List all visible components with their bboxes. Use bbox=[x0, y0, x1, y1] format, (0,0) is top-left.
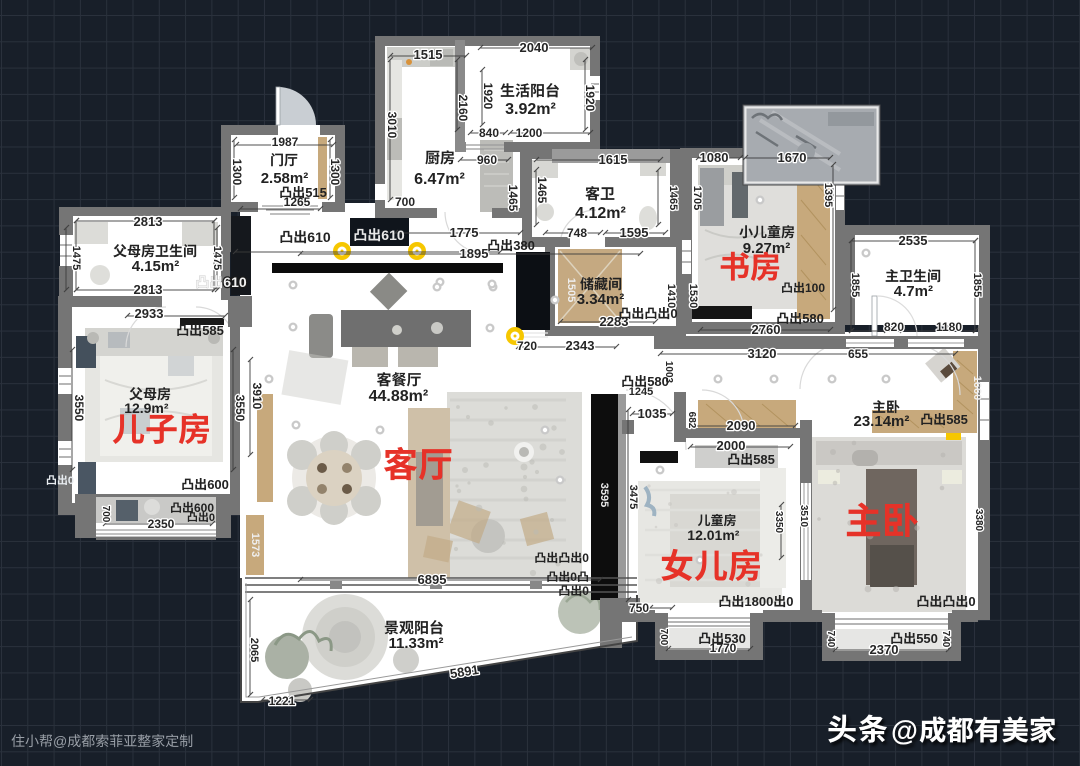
svg-text:6895: 6895 bbox=[418, 572, 447, 587]
svg-text:3010: 3010 bbox=[385, 112, 399, 139]
svg-text:1670: 1670 bbox=[778, 150, 807, 165]
svg-text:2090: 2090 bbox=[727, 418, 756, 433]
svg-text:1300: 1300 bbox=[328, 159, 342, 186]
svg-text:2933: 2933 bbox=[135, 306, 164, 321]
svg-text:12.9m²: 12.9m² bbox=[124, 400, 169, 416]
svg-text:748: 748 bbox=[567, 226, 587, 240]
svg-text:1200: 1200 bbox=[516, 126, 543, 140]
svg-text:1465: 1465 bbox=[535, 177, 549, 204]
svg-text:1465: 1465 bbox=[506, 185, 520, 212]
svg-text:2.58m²: 2.58m² bbox=[261, 170, 309, 187]
svg-text:0: 0 bbox=[68, 475, 74, 487]
svg-text:2813: 2813 bbox=[134, 214, 163, 229]
svg-text:1035: 1035 bbox=[638, 406, 667, 421]
svg-text:2370: 2370 bbox=[870, 642, 899, 657]
svg-text:585: 585 bbox=[202, 323, 224, 338]
svg-text:1660: 1660 bbox=[971, 376, 983, 400]
svg-text:0: 0 bbox=[209, 512, 215, 524]
svg-text:3.92m²: 3.92m² bbox=[505, 101, 556, 118]
svg-text:2813: 2813 bbox=[134, 282, 163, 297]
svg-text:610: 610 bbox=[223, 274, 247, 290]
svg-text:1615: 1615 bbox=[599, 152, 628, 167]
svg-text:3475: 3475 bbox=[627, 485, 639, 509]
svg-text:2000: 2000 bbox=[717, 438, 746, 453]
svg-text:1395: 1395 bbox=[822, 183, 834, 207]
svg-text:@: @ bbox=[53, 733, 67, 749]
svg-text:12.01m²: 12.01m² bbox=[687, 527, 739, 543]
svg-text:580: 580 bbox=[802, 311, 824, 326]
svg-text:1855: 1855 bbox=[849, 273, 861, 297]
svg-text:580: 580 bbox=[647, 374, 669, 389]
svg-text:750: 750 bbox=[629, 601, 649, 615]
svg-text:1775: 1775 bbox=[450, 225, 479, 240]
svg-text:6.47m²: 6.47m² bbox=[414, 171, 465, 188]
svg-text:600: 600 bbox=[207, 477, 229, 492]
svg-text:1465: 1465 bbox=[667, 186, 679, 210]
svg-text:2343: 2343 bbox=[566, 338, 595, 353]
svg-text:4.12m²: 4.12m² bbox=[575, 205, 626, 222]
svg-text:4.15m²: 4.15m² bbox=[132, 258, 180, 275]
svg-text:1530: 1530 bbox=[687, 284, 699, 308]
svg-text:100: 100 bbox=[805, 281, 825, 295]
svg-text:2040: 2040 bbox=[520, 40, 549, 55]
svg-text:1800: 1800 bbox=[744, 594, 773, 609]
svg-text:1505: 1505 bbox=[565, 278, 577, 302]
svg-text:1895: 1895 bbox=[460, 246, 489, 261]
svg-text:840: 840 bbox=[479, 126, 499, 140]
svg-text:610: 610 bbox=[307, 229, 331, 245]
svg-text:2535: 2535 bbox=[899, 233, 928, 248]
svg-text:3.34m²: 3.34m² bbox=[577, 291, 625, 308]
svg-text:1080: 1080 bbox=[700, 150, 729, 165]
svg-text:3120: 3120 bbox=[748, 346, 777, 361]
svg-text:380: 380 bbox=[513, 238, 535, 253]
svg-text:2760: 2760 bbox=[752, 322, 781, 337]
svg-text:700: 700 bbox=[395, 195, 415, 209]
svg-text:4.7m²: 4.7m² bbox=[894, 283, 933, 300]
svg-text:700: 700 bbox=[658, 629, 669, 646]
svg-text:1180: 1180 bbox=[936, 320, 962, 334]
svg-text:3510: 3510 bbox=[798, 505, 809, 528]
svg-text:530: 530 bbox=[724, 631, 746, 646]
svg-text:1410: 1410 bbox=[665, 284, 677, 308]
svg-text:3910: 3910 bbox=[250, 383, 264, 410]
svg-text:700: 700 bbox=[100, 506, 111, 523]
svg-text:2160: 2160 bbox=[456, 95, 470, 122]
svg-text:0: 0 bbox=[786, 594, 793, 609]
svg-text:2283: 2283 bbox=[600, 314, 629, 329]
svg-text:@: @ bbox=[891, 715, 918, 746]
svg-text:720: 720 bbox=[517, 339, 537, 353]
svg-text:1300: 1300 bbox=[230, 159, 244, 186]
svg-text:5891: 5891 bbox=[449, 662, 480, 681]
svg-text:0: 0 bbox=[582, 551, 589, 565]
svg-text:1855: 1855 bbox=[971, 273, 983, 297]
svg-text:585: 585 bbox=[753, 452, 775, 467]
svg-text:1515: 1515 bbox=[414, 47, 443, 62]
svg-text:585: 585 bbox=[946, 412, 968, 427]
svg-text:2350: 2350 bbox=[148, 517, 175, 531]
svg-text:1573: 1573 bbox=[249, 533, 261, 557]
svg-text:550: 550 bbox=[916, 631, 938, 646]
svg-text:960: 960 bbox=[477, 153, 497, 167]
svg-text:740: 740 bbox=[940, 631, 951, 648]
svg-text:740: 740 bbox=[825, 631, 836, 648]
svg-text:655: 655 bbox=[848, 347, 868, 361]
svg-text:1705: 1705 bbox=[691, 186, 703, 210]
svg-text:0: 0 bbox=[570, 570, 577, 584]
svg-text:1920: 1920 bbox=[481, 83, 495, 110]
svg-text:0: 0 bbox=[968, 594, 975, 609]
svg-text:0: 0 bbox=[582, 584, 589, 598]
svg-text:3350: 3350 bbox=[773, 511, 784, 534]
svg-text:3550: 3550 bbox=[233, 395, 247, 422]
svg-text:1221: 1221 bbox=[269, 694, 296, 708]
svg-text:3595: 3595 bbox=[598, 483, 610, 507]
svg-text:3550: 3550 bbox=[72, 395, 86, 422]
svg-text:1595: 1595 bbox=[620, 225, 649, 240]
svg-text:23.14m²: 23.14m² bbox=[854, 413, 910, 430]
svg-text:1920: 1920 bbox=[583, 85, 597, 112]
svg-text:1987: 1987 bbox=[272, 135, 299, 149]
svg-text:1475: 1475 bbox=[211, 246, 223, 270]
svg-text:11.33m²: 11.33m² bbox=[389, 635, 444, 652]
svg-text:682: 682 bbox=[686, 412, 697, 429]
svg-text:515: 515 bbox=[305, 185, 327, 200]
svg-text:610: 610 bbox=[381, 227, 405, 243]
svg-text:3380: 3380 bbox=[973, 509, 984, 532]
svg-text:44.88m²: 44.88m² bbox=[369, 388, 429, 405]
svg-text:820: 820 bbox=[884, 320, 904, 334]
svg-text:1475: 1475 bbox=[70, 246, 82, 270]
svg-text:0: 0 bbox=[670, 306, 677, 321]
svg-text:2065: 2065 bbox=[248, 638, 260, 662]
